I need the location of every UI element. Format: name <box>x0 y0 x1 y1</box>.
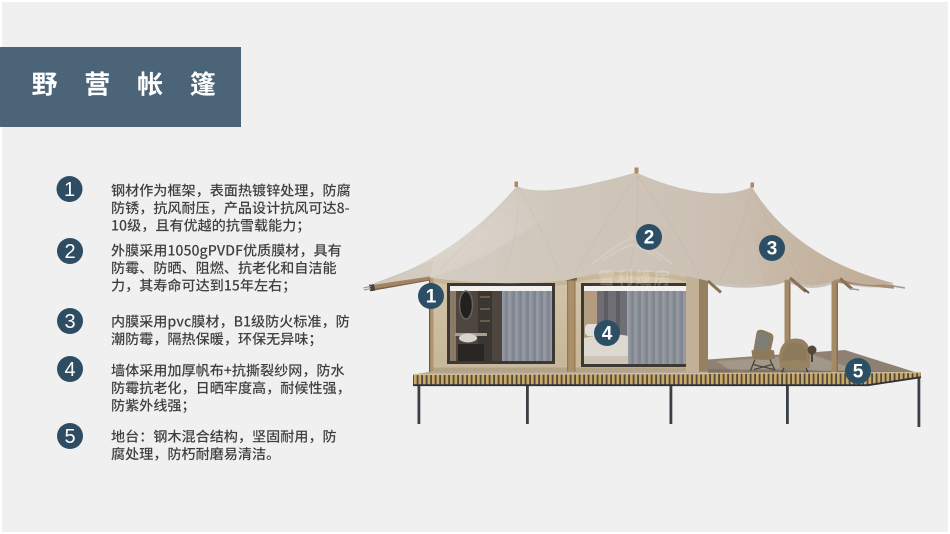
svg-text:5: 5 <box>64 426 75 448</box>
svg-text:1: 1 <box>64 179 75 201</box>
svg-text:2: 2 <box>64 241 75 263</box>
svg-text:4: 4 <box>64 359 75 381</box>
svg-text:3: 3 <box>64 311 75 333</box>
